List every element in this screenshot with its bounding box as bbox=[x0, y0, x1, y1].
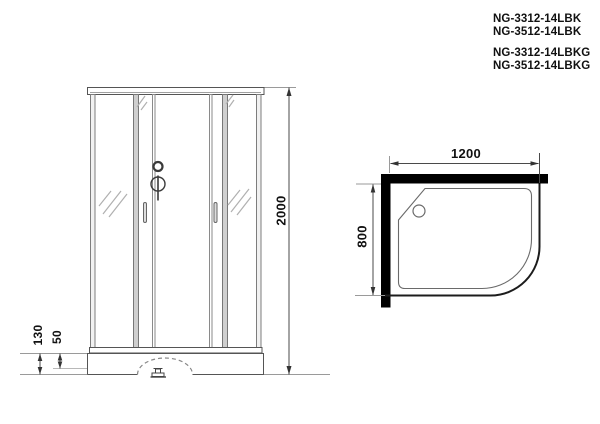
door-handle-right bbox=[214, 203, 217, 223]
glass-reflection-marks bbox=[99, 95, 251, 217]
base-tray bbox=[88, 348, 264, 375]
technical-drawing-canvas: NG-3312-14LBK NG-3512-14LBK NG-3312-14LB… bbox=[0, 0, 600, 424]
dim-width-label: 1200 bbox=[436, 147, 496, 160]
dim-height-label: 2000 bbox=[275, 181, 288, 241]
model-group-2: NG-3312-14LBKG NG-3512-14LBKG bbox=[493, 47, 590, 73]
model-number: NG-3512-14LBK bbox=[493, 26, 590, 39]
door-handle-left bbox=[144, 203, 147, 223]
frame-verticals bbox=[91, 95, 262, 348]
top-frame-bar bbox=[88, 88, 265, 95]
wall-top bbox=[381, 174, 548, 184]
dim-foot-height-label: 50 bbox=[51, 307, 63, 367]
model-group-1: NG-3312-14LBK NG-3512-14LBK bbox=[493, 13, 590, 39]
model-number-list: NG-3312-14LBK NG-3512-14LBK NG-3312-14LB… bbox=[493, 13, 590, 81]
dim-tray-height-label: 130 bbox=[32, 305, 44, 365]
model-number: NG-3312-14LBKG bbox=[493, 47, 590, 60]
model-number: NG-3312-14LBK bbox=[493, 13, 590, 26]
tray-fill bbox=[390, 184, 540, 296]
drain-icon bbox=[413, 205, 425, 217]
top-view-plan bbox=[355, 153, 548, 308]
dim-depth-label: 800 bbox=[356, 207, 369, 267]
model-number: NG-3512-14LBKG bbox=[493, 60, 590, 73]
wall-left bbox=[381, 174, 391, 308]
